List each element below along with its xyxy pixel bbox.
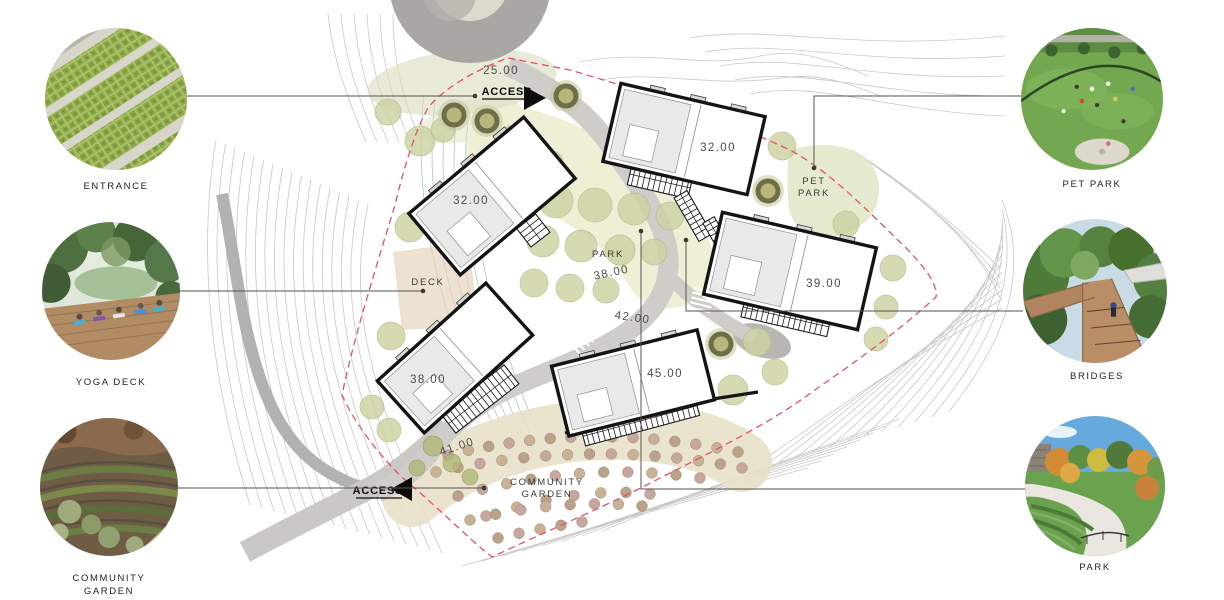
place-label: PET <box>802 176 826 187</box>
place-label: GARDEN <box>522 489 573 500</box>
elevation-label: 25.00 <box>483 65 519 77</box>
site-plan-board: 25.0032.0032.0039.0038.0045.0038.0042.00… <box>0 0 1224 600</box>
pet-park-label: PET PARK <box>1022 178 1162 191</box>
community-garden-label: COMMUNITY GARDEN <box>67 572 151 599</box>
place-label: DECK <box>411 277 444 288</box>
place-label: COMMUNITY <box>510 477 584 488</box>
place-label: PARK <box>592 249 624 260</box>
grass-paver-illustration <box>45 28 187 170</box>
dog-park-illustration <box>1021 28 1163 170</box>
elevation-label: 32.00 <box>453 195 489 207</box>
elevation-label: 32.00 <box>700 142 736 154</box>
entrance-photo <box>45 28 187 170</box>
elevation-label: 38.00 <box>410 374 446 386</box>
elevation-label: 39.00 <box>806 278 842 290</box>
terraced-garden-illustration <box>40 418 178 556</box>
entrance-label: ENTRANCE <box>46 180 186 193</box>
elevation-label: 45.00 <box>647 368 683 380</box>
pet-park-photo <box>1021 28 1163 170</box>
yoga-deck-photo <box>42 222 180 360</box>
elevated-bridge-illustration <box>1023 219 1167 363</box>
terraced-park-illustration <box>1025 416 1165 556</box>
community-garden-photo <box>40 418 178 556</box>
entrance-roundabout <box>410 0 530 42</box>
park-label: PARK <box>1025 561 1165 574</box>
place-label: PARK <box>798 188 830 199</box>
yoga-deck-label: YOGA DECK <box>41 376 181 389</box>
bridges-photo <box>1023 219 1167 363</box>
yoga-deck-illustration <box>42 222 180 360</box>
bridges-label: BRIDGES <box>1027 370 1167 383</box>
park-photo <box>1025 416 1165 556</box>
